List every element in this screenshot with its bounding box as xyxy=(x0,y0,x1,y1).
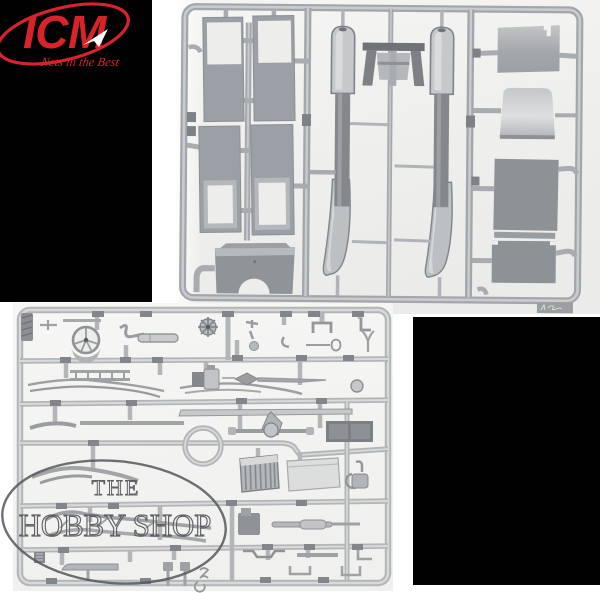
svg-text:Nets in the Best: Nets in the Best xyxy=(39,55,121,69)
svg-text:HOBBY SHOP: HOBBY SHOP xyxy=(19,507,212,543)
svg-text:ICM: ICM xyxy=(23,6,108,58)
svg-text:THE: THE xyxy=(92,475,141,500)
